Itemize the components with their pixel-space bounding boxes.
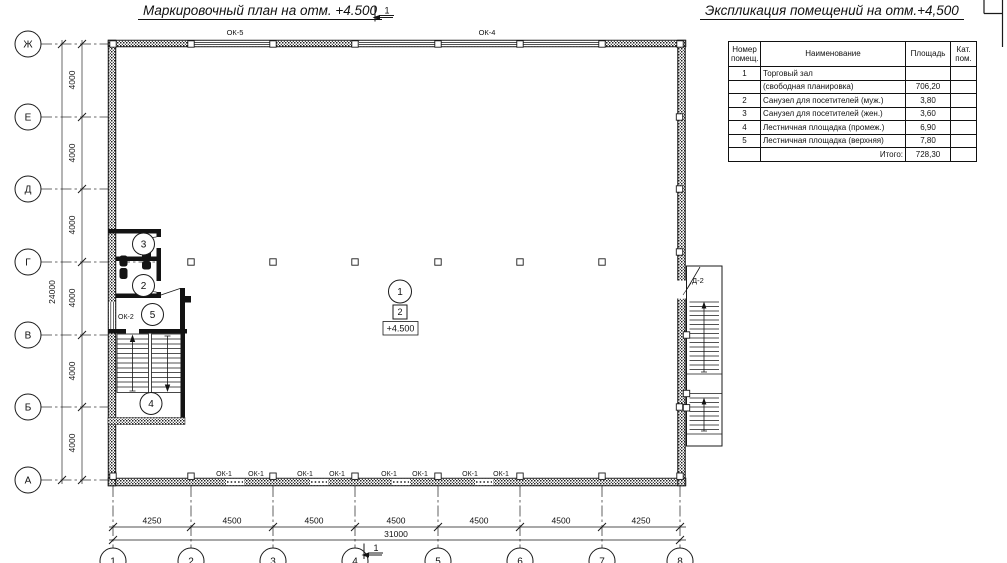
grid-col-label: 1	[110, 557, 116, 563]
grid-col-label: 7	[599, 557, 605, 563]
column	[110, 473, 116, 479]
grid-row-label: Е	[25, 113, 32, 124]
column	[676, 249, 682, 255]
grid-row-label: Ж	[23, 40, 33, 51]
dimension-total-label: 24000	[47, 280, 57, 304]
grid-row-bubbles: Ж Е Д Г В Б А	[15, 31, 41, 493]
grid-row-label: Д	[25, 185, 32, 196]
grid-col-label: 2	[188, 557, 194, 563]
column	[517, 473, 523, 479]
grid-col-label: 3	[270, 557, 276, 563]
arrow-down-icon	[165, 385, 170, 393]
column	[352, 473, 358, 479]
section-number: 1	[384, 6, 389, 16]
column	[352, 259, 358, 265]
window-opening-ok2	[109, 302, 116, 329]
window-label: ОК-1	[493, 471, 509, 478]
window-label: ОК-2	[118, 314, 134, 321]
column	[676, 114, 682, 120]
window-opening-ok5	[195, 41, 270, 47]
grid-column-bubbles: 1 2 3 4 5 6 7 8	[100, 548, 693, 563]
column	[435, 41, 441, 47]
window-label: ОК-1	[216, 471, 232, 478]
partition-wall	[108, 229, 161, 234]
column	[270, 473, 276, 479]
column	[683, 332, 689, 338]
dimension-label: 4000	[67, 215, 77, 234]
dimension-label: 4250	[143, 516, 162, 526]
wall-pier	[185, 296, 192, 303]
stair-treads	[117, 339, 183, 387]
door-opening	[156, 237, 161, 248]
dimension-label: 4500	[223, 516, 242, 526]
column	[676, 404, 682, 410]
drawing-sheet: Маркировочный план на отм. +4.500 Экспли…	[0, 0, 1007, 563]
dimension-label: 4500	[387, 516, 406, 526]
column	[599, 473, 605, 479]
grid-col-label: 4	[352, 557, 358, 563]
floor-type-number: 2	[397, 307, 402, 317]
opening-labels: ОК-5 ОК-4 ОК-1 ОК-1 ОК-1 ОК-1 ОК-1 ОК-1 …	[118, 28, 704, 478]
door-opening-d2	[677, 281, 686, 299]
window-label: ОК-1	[381, 471, 397, 478]
arrow-up-icon	[702, 302, 707, 309]
window-label: ОК-4	[479, 28, 496, 37]
grid-col-label: 5	[435, 557, 441, 563]
column	[188, 41, 194, 47]
window-label: ОК-1	[412, 471, 428, 478]
column	[188, 259, 194, 265]
dimension-label: 4250	[632, 516, 651, 526]
sheet-frame-fragment	[984, 0, 1003, 47]
arrow-up-icon	[702, 398, 707, 405]
door-opening	[156, 281, 161, 292]
column	[435, 259, 441, 265]
dimension-label: 4000	[67, 288, 77, 307]
column	[599, 41, 605, 47]
column	[683, 405, 689, 411]
wall-right	[678, 40, 686, 486]
window-opening-ok4	[359, 41, 599, 47]
window-label: ОК-1	[462, 471, 478, 478]
column	[188, 473, 194, 479]
dimension-label: 4000	[67, 143, 77, 162]
door-label: Д-2	[692, 276, 704, 285]
floor-plan-canvas: 4000 4000 4000 4000 4000 4000 24000 4250…	[0, 0, 1007, 563]
column	[517, 41, 523, 47]
partition-wall	[180, 288, 185, 332]
grid-col-label: 8	[677, 557, 683, 563]
toilet-fixture	[120, 256, 128, 267]
arrow-up-icon	[130, 335, 135, 343]
toilet-fixture	[120, 268, 128, 279]
grid-row-label: Г	[25, 258, 31, 269]
section-mark-top: 1	[373, 6, 395, 22]
window-label: ОК-1	[248, 471, 264, 478]
section-number: 1	[373, 543, 378, 553]
dimension-label: 4500	[552, 516, 571, 526]
window-label: ОК-1	[297, 471, 313, 478]
toilet-fixture	[142, 261, 151, 270]
room-number: 3	[141, 240, 147, 251]
room-number: 4	[148, 399, 154, 410]
partition-wall	[108, 329, 187, 334]
room-number: 2	[141, 281, 147, 292]
grid-row-label: В	[25, 331, 32, 342]
column	[599, 259, 605, 265]
grid-col-label: 6	[517, 557, 523, 563]
dimension-label: 4500	[470, 516, 489, 526]
elevation-value: +4.500	[387, 324, 415, 334]
dimension-label: 4000	[67, 70, 77, 89]
stair-direction-line	[701, 304, 707, 431]
column	[435, 473, 441, 479]
dimension-label: 4000	[67, 433, 77, 452]
room-number: 1	[397, 287, 403, 298]
structural-columns	[110, 41, 683, 480]
column	[676, 186, 682, 192]
grid-row-label: Б	[25, 403, 32, 414]
column	[677, 41, 683, 47]
stair-wall	[108, 418, 185, 425]
window-label: ОК-1	[329, 471, 345, 478]
external-stair	[683, 266, 722, 446]
grid-row-label: А	[25, 476, 32, 487]
dimension-label: 4000	[67, 361, 77, 380]
stair-direction-line	[130, 339, 136, 391]
arrow-left-icon	[373, 15, 381, 20]
column	[517, 259, 523, 265]
dimension-lines	[62, 40, 686, 540]
door-opening	[126, 329, 139, 335]
column	[352, 41, 358, 47]
window-label: ОК-5	[227, 28, 244, 37]
column	[270, 259, 276, 265]
dimension-label: 4500	[305, 516, 324, 526]
room-number: 5	[150, 310, 156, 321]
column	[270, 41, 276, 47]
dimension-total-label: 31000	[384, 529, 408, 539]
column	[683, 390, 689, 396]
column	[110, 41, 116, 47]
column	[677, 473, 683, 479]
